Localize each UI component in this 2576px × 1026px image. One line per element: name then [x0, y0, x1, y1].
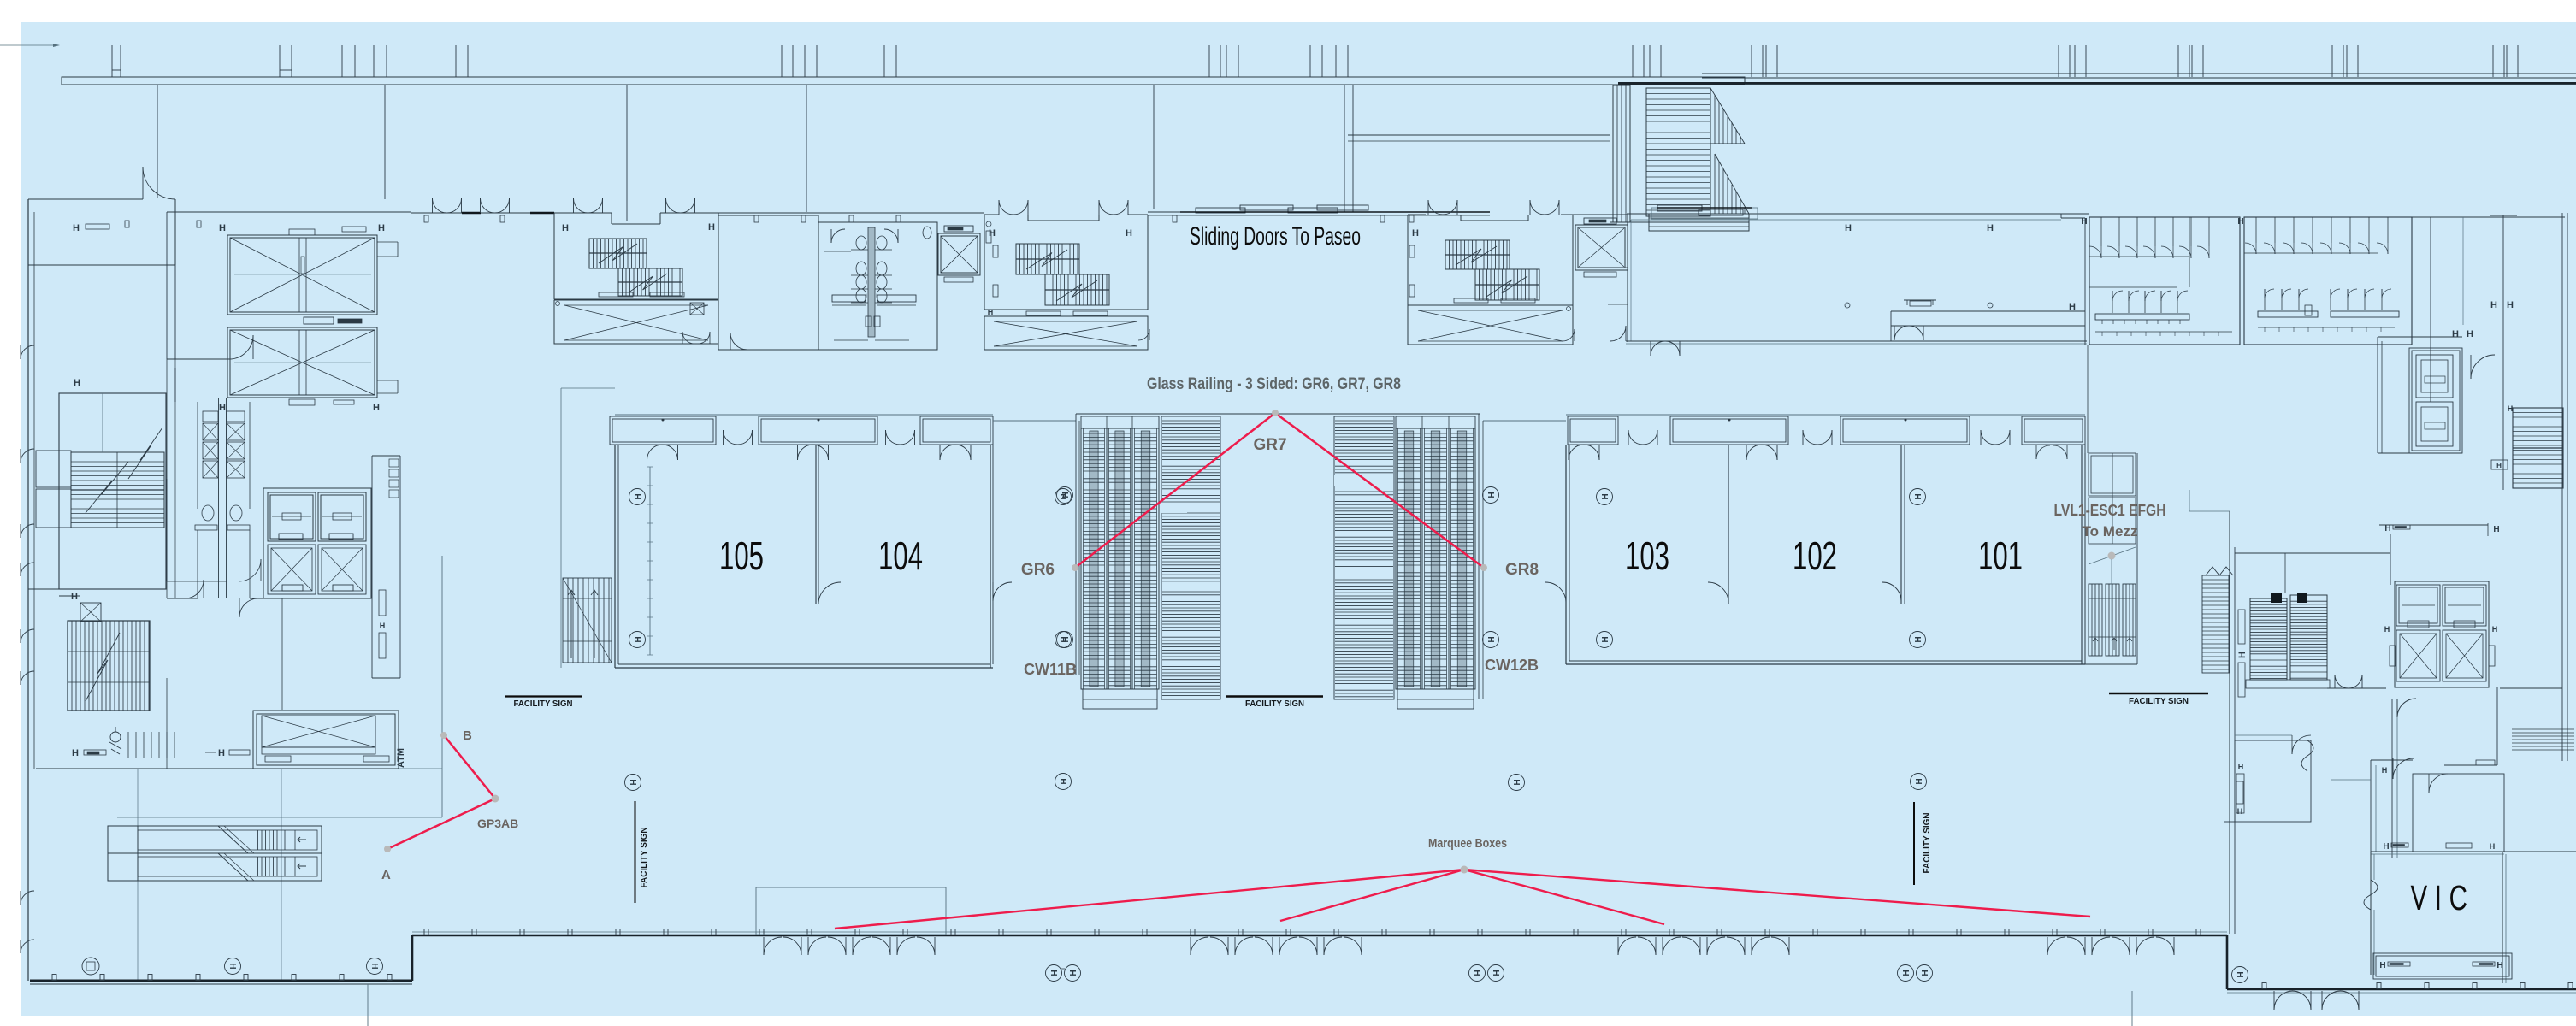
svg-text:H: H [2496, 462, 2502, 469]
svg-text:VIC: VIC [2410, 878, 2474, 917]
svg-text:To Mezz: To Mezz [2083, 523, 2138, 540]
svg-text:H: H [2507, 300, 2514, 310]
svg-text:104: 104 [878, 534, 923, 578]
svg-text:H: H [227, 963, 237, 969]
svg-text:H: H [2237, 807, 2243, 816]
svg-text:H: H [2237, 652, 2248, 658]
svg-text:H: H [1412, 228, 1419, 239]
svg-text:H: H [218, 748, 225, 758]
svg-text:H: H [1845, 223, 1852, 233]
svg-text:GR8: GR8 [1505, 561, 1539, 579]
svg-text:H: H [1486, 492, 1495, 498]
svg-text:H: H [369, 963, 379, 969]
svg-text:H: H [219, 223, 226, 233]
svg-text:Marquee Boxes: Marquee Boxes [1428, 836, 1507, 851]
svg-text:H: H [373, 403, 380, 413]
svg-text:H: H [1913, 778, 1923, 784]
svg-text:H: H [1060, 492, 1069, 498]
svg-text:CW12B: CW12B [1485, 657, 1539, 674]
svg-text:102: 102 [1793, 534, 1837, 578]
svg-text:H: H [1599, 636, 1609, 642]
svg-text:FACILITY SIGN: FACILITY SIGN [1922, 813, 1932, 874]
svg-text:H: H [2384, 625, 2390, 634]
svg-text:H: H [380, 622, 386, 630]
svg-text:LVL1-ESC1 EFGH: LVL1-ESC1 EFGH [2054, 502, 2166, 519]
svg-text:H: H [2383, 842, 2389, 852]
svg-text:Sliding Doors To Paseo: Sliding Doors To Paseo [1190, 222, 1361, 251]
svg-text:FACILITY SIGN: FACILITY SIGN [1245, 699, 1304, 709]
svg-text:H: H [2493, 525, 2499, 534]
svg-text:H: H [2237, 217, 2243, 227]
svg-text:H: H [72, 748, 79, 758]
svg-text:H: H [1067, 970, 1077, 976]
svg-text:H: H [1060, 636, 1069, 642]
svg-text:GR6: GR6 [1021, 561, 1055, 579]
svg-text:H: H [2238, 763, 2244, 771]
svg-text:H: H [219, 403, 226, 413]
svg-text:H: H [2496, 961, 2502, 970]
svg-text:H: H [1599, 493, 1609, 499]
svg-text:FACILITY SIGN: FACILITY SIGN [2129, 696, 2189, 706]
svg-text:H: H [1912, 636, 1922, 642]
svg-text:FACILITY SIGN: FACILITY SIGN [514, 699, 573, 709]
svg-text:H: H [1486, 636, 1495, 642]
svg-text:H: H [1058, 778, 1067, 784]
svg-text:H: H [708, 222, 715, 233]
svg-text:H: H [1491, 970, 1500, 976]
svg-text:H: H [2382, 766, 2388, 775]
svg-text:GR7: GR7 [1253, 436, 1286, 454]
svg-text:B: B [463, 728, 472, 743]
svg-text:H: H [2081, 217, 2087, 227]
svg-text:H: H [632, 636, 641, 642]
svg-text:101: 101 [1978, 534, 2023, 578]
svg-text:H: H [73, 223, 80, 233]
svg-text:H: H [1912, 493, 1922, 499]
svg-text:H: H [1126, 228, 1132, 239]
svg-text:H: H [989, 228, 996, 239]
svg-text:H: H [2490, 842, 2496, 851]
svg-text:H: H [1511, 779, 1521, 785]
svg-text:A: A [381, 868, 391, 882]
svg-text:H: H [1900, 970, 1910, 976]
svg-text:H: H [988, 308, 994, 316]
svg-text:H: H [2235, 971, 2244, 977]
svg-text:H: H [2384, 524, 2390, 534]
svg-text:H: H [1919, 970, 1929, 976]
svg-text:H: H [628, 779, 637, 785]
svg-text:Glass Railing - 3 Sided: GR6,: Glass Railing - 3 Sided: GR6, GR7, GR8 [1147, 375, 1401, 393]
svg-text:H: H [632, 493, 641, 499]
svg-text:GP3AB: GP3AB [477, 817, 518, 830]
svg-text:H: H [2508, 404, 2514, 413]
svg-text:H: H [2379, 961, 2385, 970]
svg-text:H: H [378, 223, 385, 233]
svg-text:FACILITY SIGN: FACILITY SIGN [639, 828, 649, 888]
svg-text:H: H [2467, 329, 2473, 339]
svg-text:CW11B: CW11B [1024, 661, 1077, 678]
svg-text:ATM: ATM [396, 748, 406, 768]
svg-text:H: H [2492, 625, 2498, 634]
svg-text:H: H [1987, 223, 1994, 233]
svg-text:H: H [1472, 970, 1481, 976]
svg-text:H: H [74, 378, 80, 388]
svg-text:H: H [1049, 970, 1058, 976]
svg-text:H: H [2069, 302, 2076, 312]
svg-text:105: 105 [719, 534, 764, 578]
svg-text:103: 103 [1625, 534, 1669, 578]
svg-text:H: H [71, 592, 78, 602]
svg-text:H: H [2490, 300, 2497, 310]
svg-text:H: H [2452, 329, 2459, 339]
svg-text:H: H [562, 223, 569, 233]
